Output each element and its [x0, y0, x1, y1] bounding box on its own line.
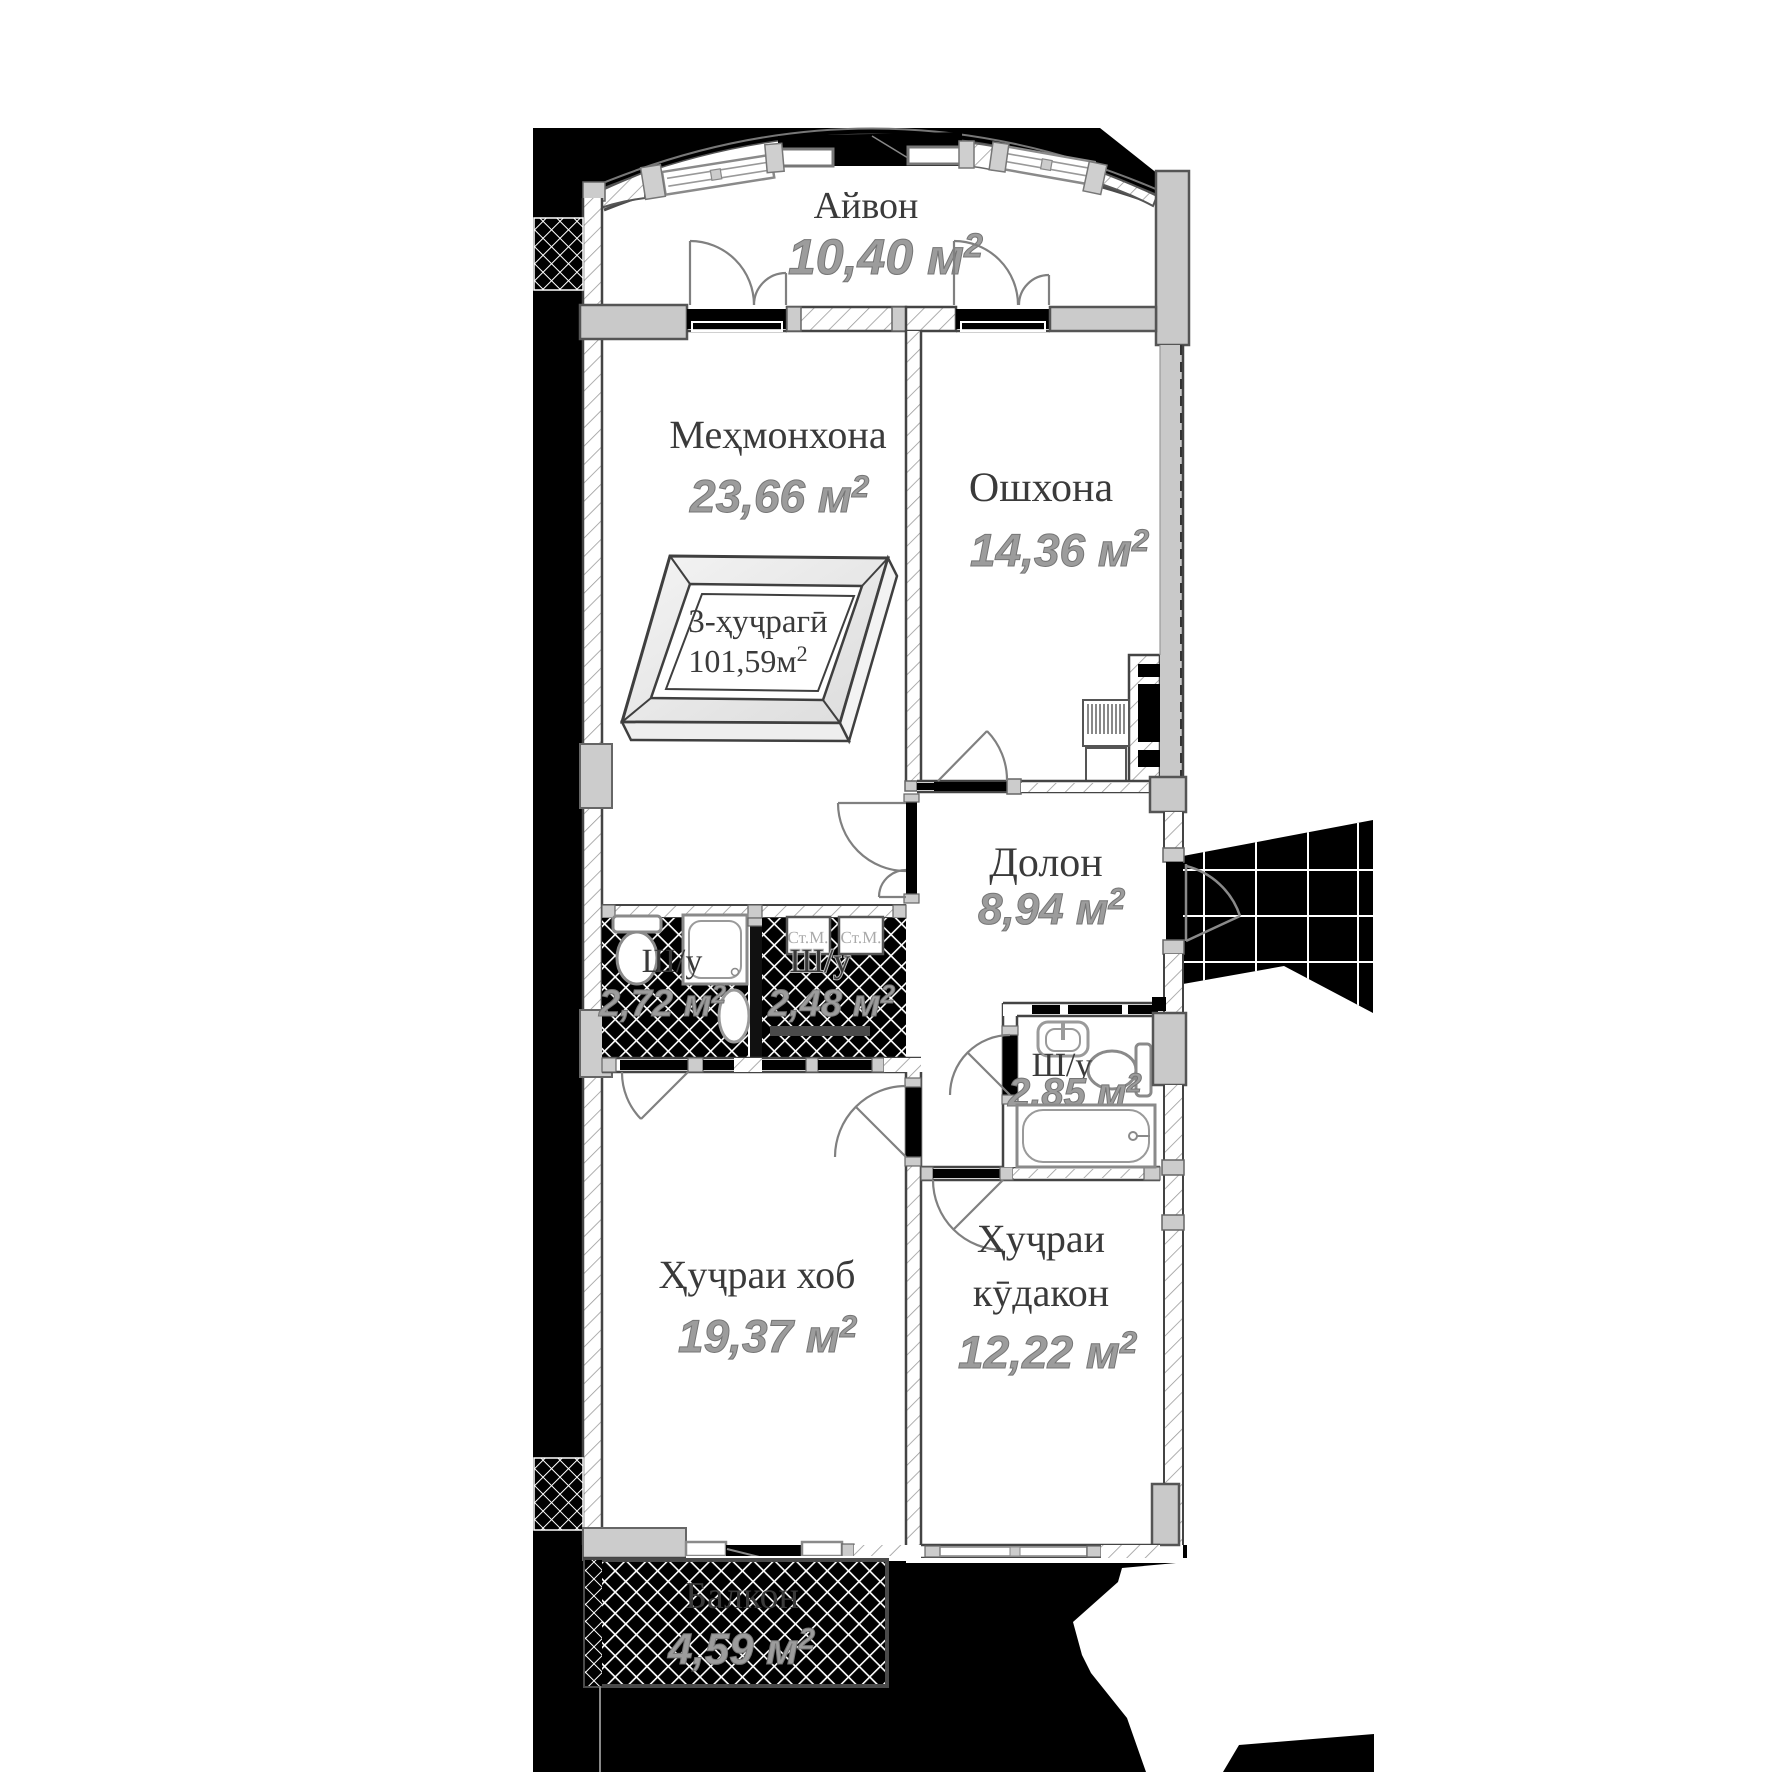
svg-text:кӯдакон: кӯдакон — [973, 1270, 1109, 1315]
svg-text:Балкон: Балкон — [685, 1575, 799, 1617]
svg-text:2,72 м2: 2,72 м2 — [598, 979, 727, 1025]
svg-text:8,94 м2: 8,94 м2 — [978, 883, 1125, 934]
svg-text:Ҳуҷраи: Ҳуҷраи — [977, 1216, 1105, 1261]
svg-text:3-ҳуҷрагӣ: 3-ҳуҷрагӣ — [688, 604, 827, 640]
svg-text:Долон: Долон — [989, 840, 1103, 886]
svg-text:19,37 м2: 19,37 м2 — [678, 1309, 857, 1362]
svg-text:14,36 м2: 14,36 м2 — [970, 523, 1149, 576]
svg-text:Ш/у: Ш/у — [790, 943, 851, 980]
svg-text:Айвон: Айвон — [814, 185, 919, 227]
svg-text:Ҳуҷраи хоб: Ҳуҷраи хоб — [659, 1252, 856, 1297]
svg-text:4,59 м2: 4,59 м2 — [667, 1623, 815, 1674]
svg-text:2,48 м2: 2,48 м2 — [767, 979, 896, 1025]
svg-text:12,22 м2: 12,22 м2 — [958, 1325, 1137, 1378]
svg-text:Ш/у: Ш/у — [642, 943, 703, 980]
svg-text:Меҳмонхона: Меҳмонхона — [669, 412, 886, 457]
svg-text:Ошхона: Ошхона — [969, 465, 1114, 511]
svg-text:23,66 м2: 23,66 м2 — [689, 469, 869, 522]
svg-text:101,59м2: 101,59м2 — [688, 641, 807, 679]
